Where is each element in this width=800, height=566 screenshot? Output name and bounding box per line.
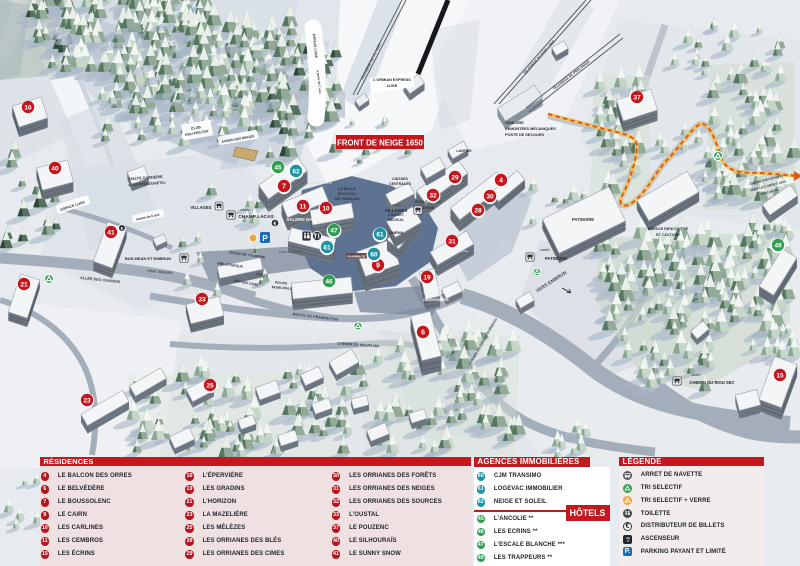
svg-text:CABINET: CABINET — [388, 213, 405, 217]
svg-text:BUS MEAN ET EMBRUN: BUS MEAN ET EMBRUN — [125, 256, 171, 261]
svg-text:25: 25 — [206, 382, 214, 389]
svg-text:ESPACE RENCONTRE: ESPACE RENCONTRE — [648, 227, 689, 231]
svg-text:45: 45 — [274, 164, 282, 171]
svg-text:19: 19 — [423, 274, 431, 281]
svg-text:SEMLORE: SEMLORE — [505, 121, 524, 125]
svg-text:61: 61 — [323, 244, 331, 251]
svg-text:CAISSES: CAISSES — [392, 177, 408, 181]
svg-text:30: 30 — [486, 193, 494, 200]
svg-text:60: 60 — [370, 251, 378, 258]
svg-text:CHAMP LACAS: CHAMP LACAS — [238, 214, 274, 220]
svg-text:LAVERIE: LAVERIE — [456, 149, 472, 153]
svg-text:Place: Place — [461, 249, 469, 253]
svg-text:FRONT DE NEIGE 1650: FRONT DE NEIGE 1650 — [337, 139, 423, 148]
svg-text:11: 11 — [300, 203, 307, 210]
svg-text:P: P — [262, 234, 268, 243]
svg-text:29: 29 — [451, 174, 459, 181]
svg-text:9: 9 — [376, 260, 380, 269]
svg-text:7: 7 — [282, 181, 286, 190]
svg-text:CHEMIN DU RIOU SEC: CHEMIN DU RIOU SEC — [689, 380, 734, 385]
svg-text:LA BULLE: LA BULLE — [338, 187, 356, 191]
svg-text:62: 62 — [292, 168, 300, 175]
svg-text:PATINOIRE: PATINOIRE — [545, 256, 567, 261]
svg-text:€: € — [273, 221, 276, 227]
svg-text:16: 16 — [24, 104, 32, 111]
svg-text:LUGE: LUGE — [387, 84, 398, 88]
svg-text:10: 10 — [322, 205, 330, 212]
svg-text:SKI FRANÇAIS: SKI FRANÇAIS — [335, 197, 361, 201]
svg-text:MÉDICAL: MÉDICAL — [388, 217, 405, 222]
svg-text:6: 6 — [421, 327, 425, 336]
svg-text:REMONTÉES MÉCANIQUES: REMONTÉES MÉCANIQUES — [505, 126, 556, 131]
svg-text:VILLAGES: VILLAGES — [191, 205, 212, 210]
svg-text:ARRÊT: ARRÊT — [240, 207, 250, 212]
svg-text:ARRÊT: ARRÊT — [691, 372, 701, 377]
svg-text:61: 61 — [376, 231, 384, 238]
svg-text:L'ORMIAN EXPRESS: L'ORMIAN EXPRESS — [373, 78, 411, 82]
svg-text:41: 41 — [107, 229, 115, 236]
svg-text:SÉMINAIRES: SÉMINAIRES — [423, 290, 445, 295]
svg-text:ET CULTURE: ET CULTURE — [656, 233, 680, 237]
svg-text:GENDARMERIE: GENDARMERIE — [423, 298, 449, 302]
svg-text:40: 40 — [51, 165, 59, 172]
svg-text:ÉCOLE DU: ÉCOLE DU — [338, 191, 357, 196]
svg-text:46: 46 — [325, 278, 333, 285]
svg-text:POSTE DE SECOURS: POSTE DE SECOURS — [505, 133, 544, 137]
svg-text:GALERIE MARCHANDE: GALERIE MARCHANDE — [286, 217, 333, 222]
svg-text:Place du festival: Place du festival — [310, 181, 332, 185]
svg-text:21: 21 — [20, 281, 28, 288]
svg-text:37: 37 — [633, 94, 641, 101]
svg-text:CENTRALES: CENTRALES — [389, 182, 412, 186]
svg-text:PATINOIRE: PATINOIRE — [572, 217, 594, 222]
svg-text:€: € — [121, 226, 124, 231]
svg-text:33: 33 — [198, 296, 206, 303]
svg-text:32: 32 — [429, 192, 437, 199]
svg-text:28: 28 — [474, 207, 482, 214]
svg-text:CINÉMA: CINÉMA — [389, 230, 404, 235]
svg-text:23: 23 — [83, 397, 91, 404]
svg-text:ARRÊT: ARRÊT — [391, 202, 401, 207]
svg-text:47: 47 — [330, 227, 338, 234]
svg-text:PHARMACIE: PHARMACIE — [347, 255, 365, 259]
svg-text:OZONE: OZONE — [422, 206, 435, 210]
svg-text:Place d'accueil: Place d'accueil — [279, 250, 302, 254]
svg-text:ARRÊT: ARRÊT — [540, 247, 550, 252]
svg-text:49: 49 — [774, 242, 782, 249]
svg-text:SALLE DE: SALLE DE — [426, 286, 444, 290]
svg-text:31: 31 — [448, 238, 456, 245]
svg-text:4: 4 — [499, 175, 503, 184]
svg-text:15: 15 — [776, 372, 784, 379]
